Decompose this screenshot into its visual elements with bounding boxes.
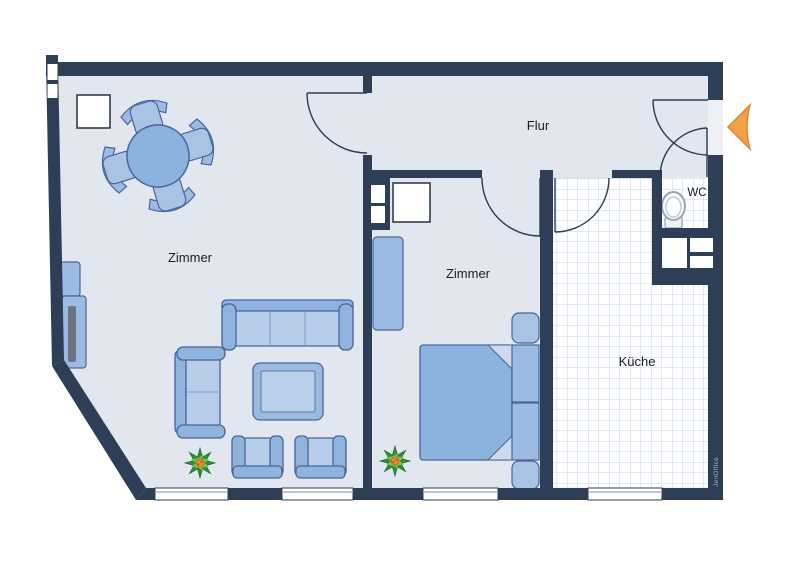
room-label-zimmer-left: Zimmer [168, 250, 213, 265]
room-label-kueche: Küche [619, 354, 656, 369]
entrance-opening [708, 100, 723, 155]
exterior-wall-top [46, 62, 723, 76]
window [423, 488, 498, 500]
interior-wall-left-room [363, 76, 372, 93]
plant [380, 446, 410, 476]
sideboard-small [60, 262, 80, 296]
interior-wall-wc-left [652, 178, 662, 230]
floor-plan-svg: Zimmer Zimmer Flur WC Küche JenOffice [0, 0, 799, 565]
white-cabinet [393, 183, 430, 222]
plant [185, 448, 215, 478]
headboard [512, 345, 539, 402]
interior-wall-flur-bottom [372, 170, 482, 178]
tv-sideboard [62, 296, 86, 368]
window [282, 488, 353, 500]
sofa-3-seat [222, 300, 353, 350]
room-label-wc: WC [687, 187, 706, 199]
sofa-2-seat [175, 347, 225, 438]
armchair [295, 436, 346, 478]
floor-plan-canvas: Zimmer Zimmer Flur WC Küche JenOffice [0, 0, 799, 565]
nightstand [512, 461, 539, 489]
watermark: JenOffice [713, 457, 720, 487]
window [155, 488, 228, 500]
toilet [662, 192, 685, 228]
wardrobe [373, 237, 403, 330]
room-label-flur: Flur [527, 118, 550, 133]
exterior-wall-right-upper [708, 76, 723, 100]
headboard [512, 403, 539, 460]
white-cabinet [77, 95, 110, 128]
armchair [232, 436, 283, 478]
nightstand [512, 313, 539, 343]
interior-wall-kitchen-top [612, 170, 662, 178]
exterior-wall-right [708, 155, 723, 500]
room-label-zimmer-middle: Zimmer [446, 266, 491, 281]
mattress [420, 345, 512, 460]
window [588, 488, 662, 500]
interior-wall-kitchen-left [540, 170, 553, 488]
coffee-table [253, 363, 323, 420]
